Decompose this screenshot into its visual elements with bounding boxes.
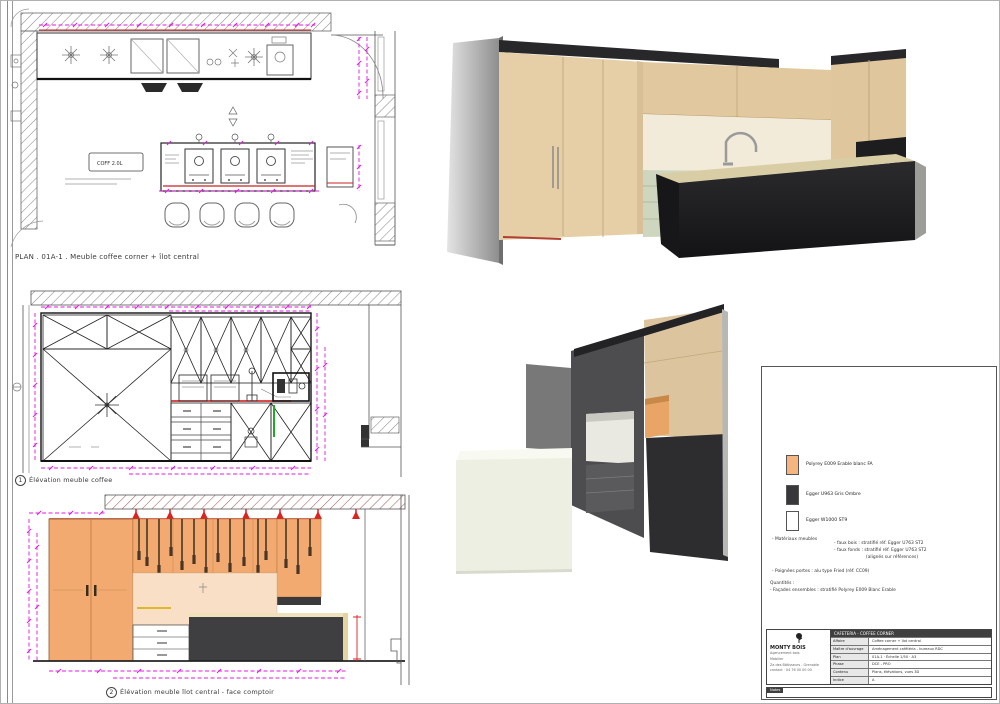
legend-section-label: - Matériaux meubles — [772, 537, 817, 542]
elevation-coffee-drawing — [9, 287, 409, 479]
render1-wall-panel — [447, 38, 499, 263]
legend-swatch-orange — [786, 455, 799, 475]
titleblock-row-value: Coffee corner + îlot central — [869, 638, 991, 645]
elev1-caption: 1Élévation meuble coffee — [15, 475, 112, 486]
notes-strip-label: Notes — [767, 688, 783, 693]
elevation-island-drawing — [13, 489, 425, 695]
legend-label: Egger W1000 ST9 — [806, 518, 847, 523]
titleblock-row-value: Aménagement cafétéria - bureaux RDC — [869, 646, 991, 653]
handles-note: - Poignées portes : alu type Fried (réf.… — [772, 569, 869, 574]
material-note: (alignés sur références) — [866, 555, 918, 560]
plan-counter — [37, 33, 311, 79]
legend-label: Egger U963 Gris Ombre — [806, 492, 861, 497]
render-3d-front — [441, 16, 926, 266]
titleblock-row-label: Indice — [831, 677, 869, 684]
titleblock-row-label: Plan — [831, 654, 869, 661]
render2-wall-panel — [526, 364, 571, 451]
elev2-island — [189, 617, 343, 661]
plan-island — [161, 143, 315, 191]
elev2-number: 2 — [106, 687, 117, 698]
plan-caption: PLAN . 01A-1 . Meuble coffee corner + îl… — [15, 253, 199, 261]
plan-label-text: COFF 2.0L — [97, 161, 123, 167]
title-block: MONTY BOIS Agencement bois Mobilier Za d… — [766, 629, 992, 685]
legend-swatch-white — [786, 511, 799, 531]
elev1-ceiling — [31, 291, 401, 305]
company-logo-icon — [793, 632, 805, 644]
titleblock-row-value: Plans, élévations, vues 3D — [869, 669, 991, 676]
titleblock-row-value: A — [869, 677, 991, 684]
plan-left-wall — [21, 31, 37, 229]
legend-label: Polyrey E009 Erable blanc FA — [806, 462, 873, 467]
floor-plan-drawing: COFF 2.0L — [9, 7, 421, 253]
titleblock-row-value: DCE - PRO — [869, 661, 991, 668]
elev2-ceiling — [105, 495, 405, 509]
titleblock-row-label: Phase — [831, 661, 869, 668]
titleblock-header: CAFETERIA - COFFEE CORNER — [831, 630, 991, 637]
titleblock-row-label: Affaire — [831, 638, 869, 645]
titleblock-row-label: Maître d'ouvrage — [831, 646, 869, 653]
titleblock-row-label: Contenu — [831, 669, 869, 676]
company-address: contact · 04 76 00 00 00 — [770, 668, 827, 674]
company-block: MONTY BOIS Agencement bois Mobilier Za d… — [767, 630, 831, 684]
drawing-sheet: COFF 2.0L PLAN . 01A-1 . Meuble coffee c… — [0, 0, 1000, 704]
notes-strip: Notes — [766, 687, 992, 698]
elev2-upper-band — [133, 519, 277, 573]
render2-white-block — [456, 458, 572, 571]
titleblock-row-value: 01A-1 · Échelle 1/50 · A3 — [869, 654, 991, 661]
material-note: - faux fonds : stratifié réf. Egger U763… — [834, 548, 927, 553]
legend-swatch-dark — [786, 485, 799, 505]
elev2-caption: 2Élévation meuble îlot central - face co… — [106, 687, 274, 698]
render1-tall-doors — [499, 52, 643, 240]
render-3d-rear — [436, 293, 756, 613]
legend-titleblock-panel: Polyrey E009 Erable blanc FA Egger U963 … — [761, 366, 997, 700]
quantities-note: - Façades ensembles : stratifié Polyrey … — [770, 588, 896, 593]
render2-dark-base — [646, 434, 728, 561]
material-note: - faux bois : stratifié réf. Egger U763 … — [834, 541, 923, 546]
titleblock-table: CAFETERIA - COFFEE CORNER AffaireCoffee … — [831, 630, 991, 684]
elev1-number: 1 — [15, 475, 26, 486]
plan-top-wall — [21, 13, 331, 31]
quantities-title: Quantités : — [770, 581, 794, 586]
